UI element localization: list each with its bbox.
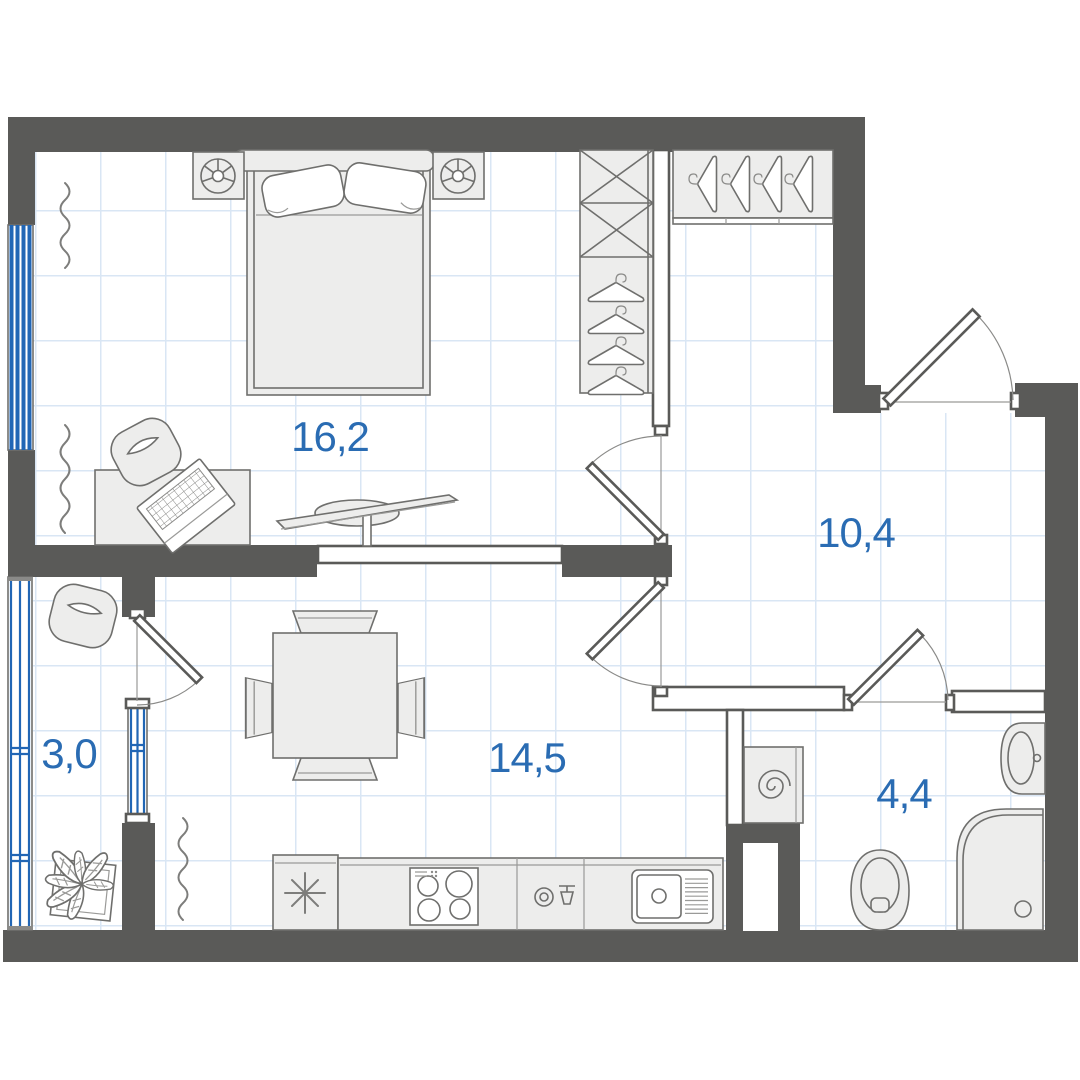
- dining-table: [273, 633, 397, 758]
- radiator-living-room: [179, 818, 188, 920]
- door-leaf: [883, 309, 979, 405]
- kitchen: [273, 855, 723, 930]
- area-label-hallway: 10,4: [817, 509, 895, 557]
- washbasin: [1001, 723, 1045, 794]
- radiator-bedroom-bottom: [61, 425, 70, 533]
- vent-shaft-niche: [743, 843, 778, 931]
- door-leaf: [587, 582, 664, 659]
- bed: [234, 150, 434, 395]
- dining-set: [246, 611, 424, 780]
- entrance-door: [879, 309, 1020, 409]
- fridge: [273, 855, 338, 930]
- living-room-door: [587, 576, 667, 696]
- radiator-bedroom-top: [61, 183, 70, 268]
- area-label-kitchen-living: 14,5: [488, 734, 566, 782]
- door-leaf: [587, 463, 664, 540]
- washing-machine: [744, 747, 803, 823]
- shower: [957, 809, 1043, 930]
- balcony-door: [130, 609, 202, 705]
- balcony-glazing-inner: [126, 699, 149, 823]
- nightstand-right: [433, 152, 484, 199]
- area-label-bedroom: 16,2: [291, 413, 369, 461]
- area-label-bathroom: 4,4: [876, 770, 931, 818]
- area-label-balcony: 3,0: [41, 730, 96, 778]
- stove: [410, 868, 478, 925]
- toilet: [851, 850, 909, 930]
- plan-drawing: [0, 0, 1080, 1080]
- kitchen-sink: [632, 870, 713, 923]
- bedroom-door: [587, 426, 667, 544]
- bedroom-wardrobe: [580, 150, 653, 395]
- plant: [44, 848, 116, 921]
- floor-plan: 16,2 10,4 3,0 14,5 4,4: [0, 0, 1080, 1080]
- desk: [95, 459, 250, 554]
- door-leaf: [848, 630, 923, 705]
- bathroom-door: [844, 630, 954, 710]
- tv-console: [318, 546, 562, 563]
- tv: [277, 495, 457, 546]
- door-leaf: [134, 615, 202, 683]
- bedroom-window: [8, 225, 33, 450]
- nightstand-left: [193, 152, 244, 199]
- balcony-glazing-west: [8, 577, 32, 930]
- hall-closet: [673, 150, 833, 224]
- armchair: [45, 580, 121, 652]
